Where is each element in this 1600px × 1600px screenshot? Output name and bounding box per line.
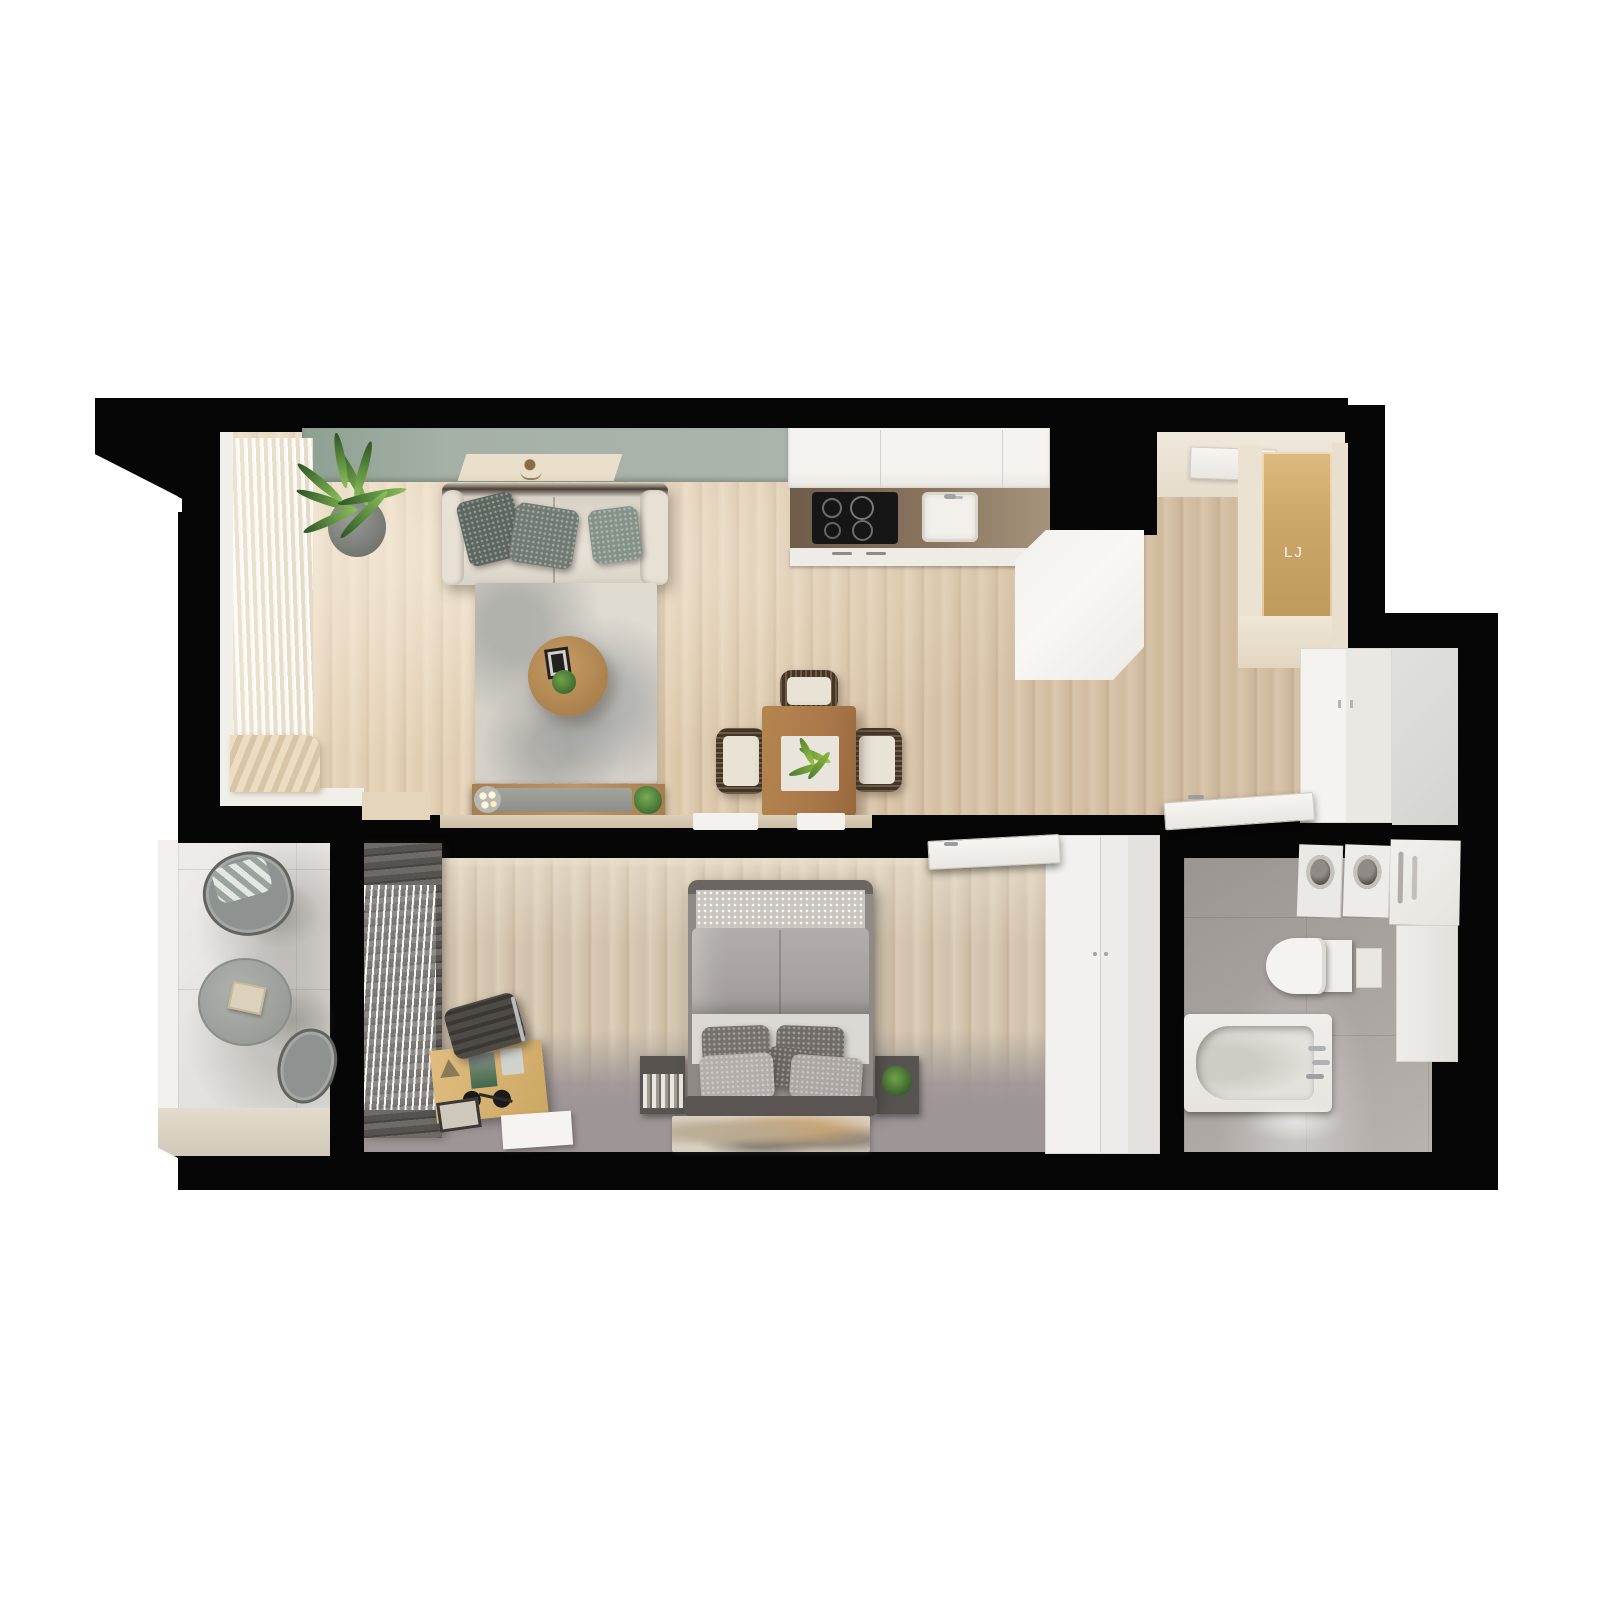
closet-door-handle-1 <box>1338 700 1341 708</box>
kitchen-upper-cabinets <box>788 428 1050 490</box>
wall-bottom <box>335 1152 1498 1190</box>
wall-left-living <box>178 400 222 806</box>
floor-plan-canvas: LJ <box>0 0 1600 1600</box>
candles-icon <box>478 790 498 810</box>
washer-door-icon <box>1306 855 1335 890</box>
sofa-pillow-2 <box>508 501 581 570</box>
cooktop-burner-2 <box>850 496 874 520</box>
toilet-flush-plate <box>1356 948 1382 988</box>
laundry-side-panel <box>1389 839 1460 925</box>
curtain-stack-beige <box>230 735 320 792</box>
bathroom-door-handle-icon <box>1188 795 1204 799</box>
washer <box>1297 844 1343 917</box>
hall-wood-mirror-panel: LJ <box>1262 452 1332 620</box>
bedroom-sheer-curtain <box>364 885 436 1110</box>
console-plant-icon <box>634 786 662 814</box>
closet-door-handle-2 <box>1350 700 1353 708</box>
divider-cap-segment-2 <box>797 813 845 830</box>
wardrobe-handle-2 <box>1104 952 1108 956</box>
dining-centerpiece-plant-icon <box>786 740 836 788</box>
media-console-tray <box>494 788 632 812</box>
wall-step-band <box>1345 613 1498 650</box>
bed-pillow-front-left <box>699 1052 775 1102</box>
floor-notebook <box>501 1111 573 1150</box>
wall-top <box>95 398 1348 432</box>
wall-bathroom-west <box>1160 822 1184 1154</box>
sofa-armrest-right <box>640 490 668 585</box>
cabinet-handle-1 <box>832 552 852 555</box>
bedroom-wardrobe-seam <box>1100 837 1101 1152</box>
wall-right-upper <box>1345 405 1385 615</box>
desk-photo-2 <box>500 1047 525 1075</box>
cooktop-burner-4 <box>852 520 873 541</box>
dryer-door-icon <box>1353 855 1382 890</box>
wall-bedroom-west <box>330 838 364 1160</box>
wall-bottom-balcony <box>155 1156 355 1190</box>
dining-chair-right <box>852 728 902 792</box>
floor-picture-frame <box>436 1097 482 1133</box>
nightstand-books-icon <box>643 1074 683 1108</box>
desk-photo-1 <box>468 1052 497 1089</box>
bedroom-wardrobe <box>1045 835 1160 1154</box>
bathroom-floor-sheen <box>1240 1100 1350 1144</box>
bed-patterned-throw <box>696 890 865 932</box>
coffee-table-plant-icon <box>552 670 576 694</box>
cabinet-handle-2 <box>866 552 886 555</box>
balcony-floor-slab <box>158 1108 338 1160</box>
dryer <box>1343 844 1391 918</box>
cooktop-burner-1 <box>822 498 842 518</box>
bedroom-door-handle-icon <box>944 842 958 846</box>
toilet-tank <box>1322 940 1352 992</box>
wall-lamp-icon <box>520 456 542 480</box>
wardrobe-handle-1 <box>1093 952 1097 956</box>
hall-closet-side-panel <box>1392 648 1458 825</box>
balcony-door-pelmet <box>362 792 430 820</box>
balcony-parapet-left <box>158 840 178 1110</box>
hall-closet-doors <box>1300 648 1392 823</box>
bedroom-rug <box>672 1116 870 1152</box>
hall-mirror-monogram: LJ <box>1284 544 1304 561</box>
sink-faucet-icon <box>944 494 956 499</box>
desk-triangle-ruler-icon <box>438 1058 460 1078</box>
wall-kitchen-hall-chunk <box>1048 415 1157 535</box>
divider-cap-segment-1 <box>693 813 758 830</box>
desk-mic-arm-icon <box>479 1093 513 1103</box>
bed-headboard <box>684 1096 877 1116</box>
kitchen-cabinet-seam <box>880 430 881 488</box>
panel-slot-2 <box>1412 856 1418 900</box>
dining-chair-left <box>716 728 766 794</box>
plant-living-icon <box>285 448 405 568</box>
bathtub-basin <box>1196 1026 1314 1100</box>
nightstand-plant-icon <box>882 1066 912 1096</box>
panel-slot-1 <box>1398 852 1404 904</box>
bathroom-cabinet-right <box>1396 925 1458 1062</box>
bed-duvet-seam <box>779 930 781 1018</box>
sofa-pillow-3 <box>587 505 643 565</box>
kitchen-cabinet-seam-2 <box>1002 430 1003 488</box>
toilet-bowl <box>1266 938 1326 994</box>
hall-wardrobe-cream-right <box>1332 443 1348 653</box>
kitchen-base-cabinet-strip <box>790 548 1050 566</box>
cooktop-burner-3 <box>824 522 841 539</box>
tall-cabinet-fridge <box>1015 530 1144 680</box>
bathtub-faucet-icon <box>1308 1046 1326 1051</box>
kitchen-sink <box>922 492 978 542</box>
